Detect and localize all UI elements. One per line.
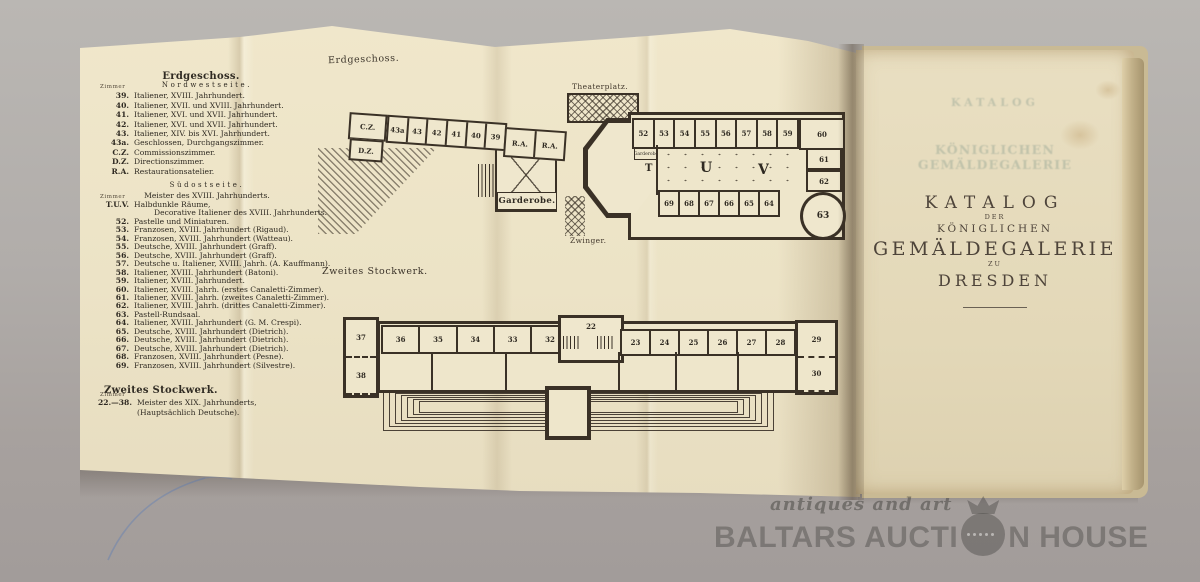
theaterplatz-label: Theaterplatz. [572, 82, 628, 91]
room-dz: D.Z. [348, 138, 383, 162]
blue-pencil-mark [90, 470, 290, 580]
inner-wall [618, 352, 620, 391]
photo-stage: Erdgeschoss. Zimmer Nordwestseite. 39. I… [0, 0, 1200, 582]
room-cell: 58 [756, 120, 777, 147]
legend-entry: 43a. Geschlossen, Durchgangszimmer. [92, 138, 307, 147]
hall-letter-u: U [700, 160, 712, 176]
room-number: 22.—38. [92, 398, 132, 417]
room-number: 39. [92, 91, 129, 100]
right-col-rooms: 6162 [806, 148, 842, 192]
zimmer-label: Zimmer [100, 83, 126, 92]
room-description: Franzosen, XVIII. Jahrhundert (Silvestre… [134, 362, 295, 370]
room-cell: 52 [634, 120, 653, 147]
ghost-showthrough-line: KATALOG [864, 96, 1126, 109]
se-bottom-room-row: 696867666564 [658, 190, 780, 217]
zwinger-label: Zwinger. [570, 236, 606, 245]
legend-entry: 39. Italiener, XVIII. Jahrhundert. [92, 91, 307, 100]
legend-entries-nordwest: 39. Italiener, XVIII. Jahrhundert. 40. I… [92, 91, 307, 176]
room-cell: 28 [765, 331, 794, 354]
zimmer-label: Zimmer [100, 193, 126, 202]
watermark-name-right: N HOUSE [1008, 521, 1148, 555]
room-cell: 38 [346, 358, 376, 396]
legend-entry: 41. Italiener, XVI. und XVII. Jahrhunder… [92, 110, 307, 119]
room-cell: 39 [484, 124, 505, 149]
room-number: D.Z. [92, 157, 129, 166]
hall-letter-v: V [758, 162, 769, 178]
room-cell: 34 [456, 327, 493, 352]
room-number: C.Z. [92, 148, 129, 157]
title-zu: ZU [864, 260, 1126, 268]
stair-symbol [563, 336, 579, 349]
room-cell: 69 [660, 192, 678, 215]
room-cell: 24 [649, 331, 678, 354]
central-porch [545, 386, 591, 440]
room-description: Commissionszimmer. [134, 148, 215, 157]
inner-wall [656, 145, 658, 195]
room-number: 43a. [92, 138, 129, 147]
title-dresden: DRESDEN [864, 271, 1126, 290]
inner-wall [675, 352, 677, 391]
suedostseite-label: Südostseite. [122, 181, 292, 190]
legend-entry: 43. Italiener, XIV. bis XVI. Jahrhundert… [92, 129, 307, 138]
legend-entry: 40. Italiener, XVII. und XVIII. Jahrhund… [92, 101, 307, 110]
room-cell: 62 [806, 170, 842, 192]
title-der: DER [864, 213, 1126, 221]
room-number: R.A. [92, 167, 129, 176]
room-description: Italiener, XVIII. Jahrhundert. [134, 91, 245, 100]
legend-entry: 42. Italiener, XVI. und XVII. Jahrhunder… [92, 120, 307, 129]
room-description: Italiener, XVI. und XVII. Jahrhundert. [134, 120, 278, 129]
inner-wall [737, 352, 739, 391]
room-cell: 59 [776, 120, 797, 147]
room-cell: 55 [694, 120, 715, 147]
room-cell: 26 [707, 331, 736, 354]
room-cell: 36 [383, 327, 418, 352]
room-description: Directionszimmer. [134, 157, 204, 166]
title-gemaeldegalerie: GEMÄLDEGALERIE [864, 238, 1126, 260]
room-cell: 64 [758, 192, 778, 215]
room-cell: 29 [798, 323, 835, 358]
zimmer-label: Zimmer [100, 391, 126, 400]
ghost-showthrough-line: KÖNIGLICHEN GEMÄLDEGALERIE [864, 142, 1126, 172]
room-cell: 40 [464, 122, 485, 147]
room-cell: 57 [735, 120, 756, 147]
room-cell: 27 [736, 331, 765, 354]
room-number: 69. [92, 362, 129, 370]
room-cell: 41 [445, 121, 466, 146]
sf-right-rooms: 2930 [795, 320, 838, 395]
room-cell: R.A. [505, 129, 535, 157]
title-koeniglichen: KÖNIGLICHEN [864, 223, 1126, 235]
legend-entry: D.Z. Directionszimmer. [92, 157, 307, 166]
room-cell: 43a [388, 117, 407, 142]
room-cell: 25 [678, 331, 707, 354]
legend-entry: C.Z. Commissionszimmer. [92, 148, 307, 157]
room-description: Geschlossen, Durchgangszimmer. [134, 138, 264, 147]
room-cell: 37 [346, 320, 376, 358]
garderobe-small-label: Garderobe [634, 148, 658, 160]
room-cell: 68 [678, 192, 698, 215]
watermark-name-left: BALTARS AUCTI [714, 521, 958, 555]
room-cell: 33 [493, 327, 530, 352]
hatched-stair-block [565, 196, 585, 236]
room-cell: R.A. [533, 131, 565, 159]
nordwestseite-label: Nordwestseite. [122, 81, 292, 90]
suedost-heading: Meister des XVIII. Jahrhunderts. [122, 191, 292, 200]
room-number: 43. [92, 129, 129, 138]
room-cell: 53 [653, 120, 674, 147]
sf-top-right-row: 232425262728 [620, 329, 796, 356]
legend-panel: Erdgeschoss. Zimmer Nordwestseite. 39. I… [92, 72, 307, 417]
second-floor-label: Zweites Stockwerk. [322, 266, 428, 277]
room-number: 40. [92, 101, 129, 110]
room-cz: C.Z. [348, 112, 388, 142]
inner-wall [505, 352, 507, 391]
book-gutter-shadow [838, 44, 864, 500]
legend-entry: R.A. Restaurationsatelier. [92, 167, 307, 176]
room-cell: 54 [673, 120, 694, 147]
room-cell: 67 [698, 192, 718, 215]
crown-icon [967, 496, 999, 514]
legend-entries-suedost: 52. Pastelle und Miniaturen. 53. Franzos… [92, 218, 307, 370]
room-cell: 66 [718, 192, 738, 215]
room-description: Meister des XIX. Jahrhunderts, (Hauptsäc… [137, 398, 307, 417]
nw-room-row: 43a4342414039 [386, 115, 508, 151]
room-number: 42. [92, 120, 129, 129]
room-cell: 61 [806, 148, 842, 170]
legend-title-erdgeschoss: Erdgeschoss. [116, 72, 286, 81]
room-cell: 56 [715, 120, 736, 147]
room-cell: 42 [425, 120, 446, 145]
room-description: Italiener, XVII. und XVIII. Jahrhundert. [134, 101, 284, 110]
room-cell: 35 [418, 327, 455, 352]
sf-left-rooms: 3738 [343, 317, 379, 398]
auction-house-crown-gavel-icon [960, 496, 1006, 556]
room-description: Italiener, XIV. bis XVI. Jahrhundert. [134, 129, 270, 138]
room-description: Italiener, XVI. und XVII. Jahrhundert. [134, 110, 278, 119]
hall-letter-t: T [645, 163, 652, 174]
inner-wall [431, 352, 433, 391]
room-cell: 23 [622, 331, 649, 354]
ra-room-row: R.A.R.A. [503, 127, 567, 161]
room-cell: 43 [405, 118, 426, 143]
watermark-name: BALTARS AUCTI N HOUSE [714, 508, 1148, 568]
legend-entry: 22.—38. Meister des XIX. Jahrhunderts, (… [92, 398, 307, 417]
title-katalog: KATALOG [864, 193, 1126, 213]
room-description: Restaurationsatelier. [134, 167, 214, 176]
room-cell: 30 [798, 358, 835, 393]
room-cell: 65 [738, 192, 758, 215]
stair-symbol [597, 336, 613, 349]
legend-entry: 69. Franzosen, XVIII. Jahrhundert (Silve… [92, 362, 307, 370]
room-number: 41. [92, 110, 129, 119]
garderobe-label: Garderobe. [497, 192, 557, 210]
title-rule [963, 307, 1027, 308]
hall-columns-dots [660, 148, 795, 190]
